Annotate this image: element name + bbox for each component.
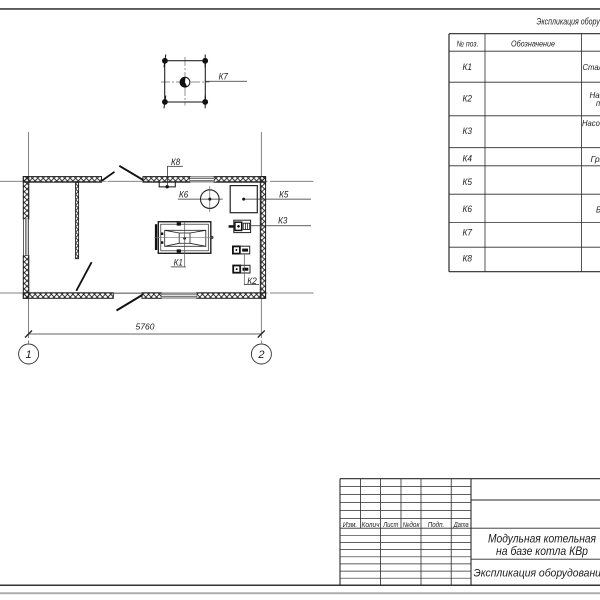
svg-text:К6: К6 <box>179 189 188 199</box>
svg-text:Бак расширительный: Бак расширительный <box>596 204 600 214</box>
svg-text:5760: 5760 <box>136 322 155 332</box>
svg-text:на базе котла КВр: на базе котла КВр <box>496 544 588 558</box>
svg-text:Колич: Колич <box>362 522 380 529</box>
svg-text:К7: К7 <box>463 227 474 237</box>
svg-text:К7: К7 <box>219 71 229 81</box>
svg-text:К1: К1 <box>174 257 183 267</box>
svg-text:К4: К4 <box>463 154 473 164</box>
svg-text:К2: К2 <box>247 276 257 286</box>
svg-text:Экспликация оборудования: Экспликация оборудования <box>474 568 600 580</box>
svg-text:Модульная котельная: Модульная котельная <box>488 531 596 545</box>
svg-text:К6: К6 <box>463 204 473 214</box>
svg-text:№ поз.: № поз. <box>457 38 479 48</box>
svg-text:Дата: Дата <box>453 522 469 529</box>
svg-text:повысительная: повысительная <box>596 98 600 108</box>
svg-text:Грязевик: Грязевик <box>591 154 600 164</box>
svg-text:Стальной котел КВр: Стальной котел КВр <box>583 62 600 72</box>
svg-text:К8: К8 <box>463 253 473 263</box>
svg-text:№док: №док <box>403 521 421 529</box>
svg-text:Обозначение: Обозначение <box>511 38 555 48</box>
svg-text:1: 1 <box>26 349 32 361</box>
svg-text:2: 2 <box>257 349 264 361</box>
svg-text:К1: К1 <box>463 62 473 72</box>
svg-text:Насосы сетевые: Насосы сетевые <box>582 118 600 128</box>
svg-text:Лист: Лист <box>382 522 398 529</box>
svg-text:К5: К5 <box>279 190 289 200</box>
svg-text:К2: К2 <box>463 94 473 104</box>
svg-text:Изм.: Изм. <box>343 522 358 529</box>
svg-text:К3: К3 <box>278 216 287 226</box>
svg-text:К5: К5 <box>463 177 473 187</box>
svg-text:Подп.: Подп. <box>428 521 445 529</box>
svg-text:К8: К8 <box>171 157 180 167</box>
svg-text:Экспликация оборудования: Экспликация оборудования <box>537 16 600 26</box>
svg-text:К3: К3 <box>463 126 473 136</box>
